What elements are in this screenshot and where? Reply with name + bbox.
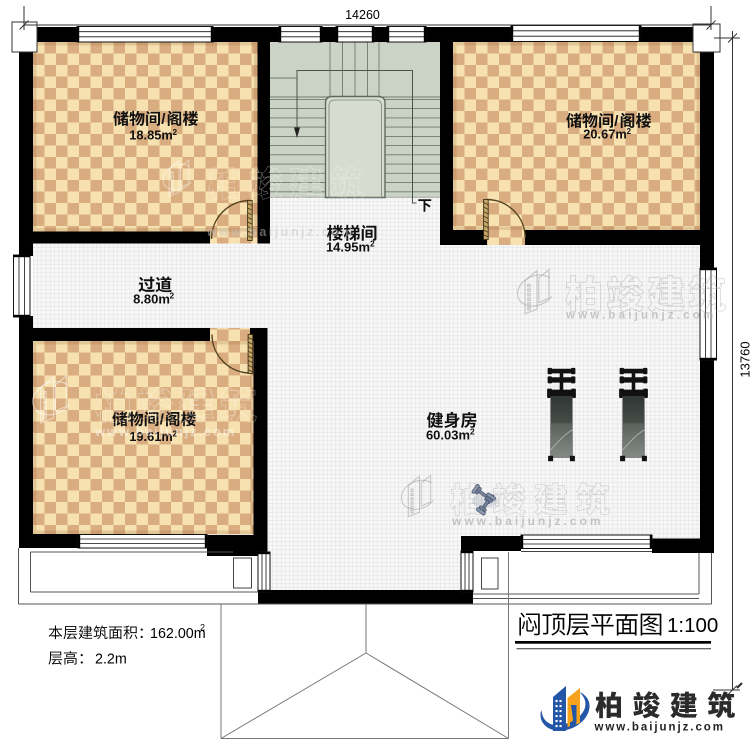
svg-text:60.03m: 60.03m <box>426 427 470 442</box>
svg-text:www.baijunjz.com: www.baijunjz.com <box>206 225 355 239</box>
svg-text:13760: 13760 <box>738 341 750 377</box>
svg-text:2: 2 <box>200 623 205 633</box>
svg-text:1:100: 1:100 <box>667 614 718 637</box>
svg-text:www.baijunjz.com: www.baijunjz.com <box>94 424 236 439</box>
svg-text:www.baijunjz.com: www.baijunjz.com <box>451 514 604 528</box>
svg-text:14260: 14260 <box>345 8 380 22</box>
svg-text:8.80m: 8.80m <box>133 291 170 306</box>
svg-text:2: 2 <box>170 291 175 301</box>
svg-text:14.95m: 14.95m <box>326 239 370 254</box>
svg-text:2: 2 <box>470 427 475 437</box>
svg-text:2: 2 <box>370 239 375 249</box>
svg-text:18.85m: 18.85m <box>129 128 172 143</box>
svg-text:162.00m: 162.00m <box>150 626 206 642</box>
svg-text:20.67m: 20.67m <box>583 127 626 142</box>
svg-text:2.2m: 2.2m <box>95 652 127 668</box>
svg-text:www.baijunjz.com: www.baijunjz.com <box>594 722 725 734</box>
svg-text:2: 2 <box>627 127 632 136</box>
svg-text:www.baijunjz.com: www.baijunjz.com <box>565 310 716 322</box>
svg-text:2: 2 <box>173 128 178 137</box>
